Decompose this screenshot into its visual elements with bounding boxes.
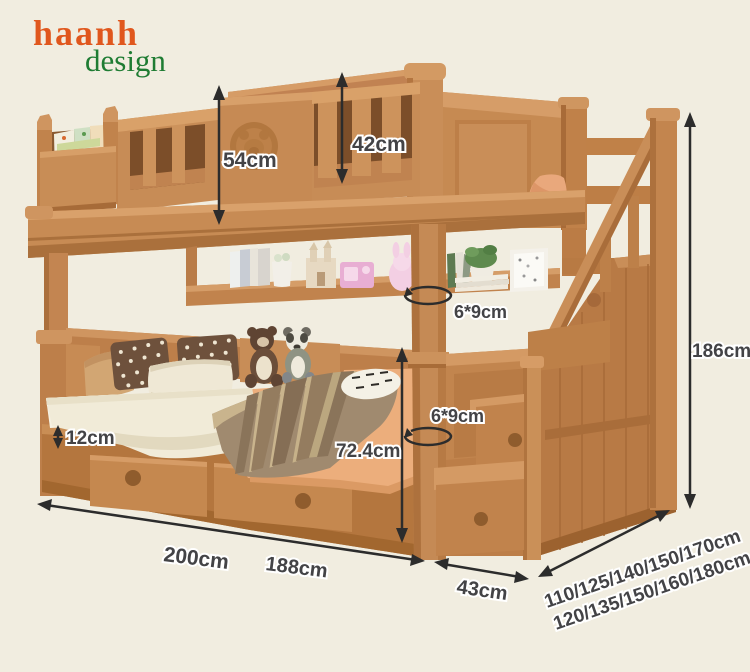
svg-text:6*9cm: 6*9cm [431,406,484,426]
svg-text:12cm: 12cm [66,428,115,449]
svg-text:186cm: 186cm [692,341,750,362]
svg-text:6*9cm: 6*9cm [454,302,507,322]
svg-text:54cm: 54cm [223,149,277,172]
svg-text:42cm: 42cm [352,133,406,156]
svg-text:72.4cm: 72.4cm [336,441,400,462]
svg-text:design: design [85,43,166,78]
